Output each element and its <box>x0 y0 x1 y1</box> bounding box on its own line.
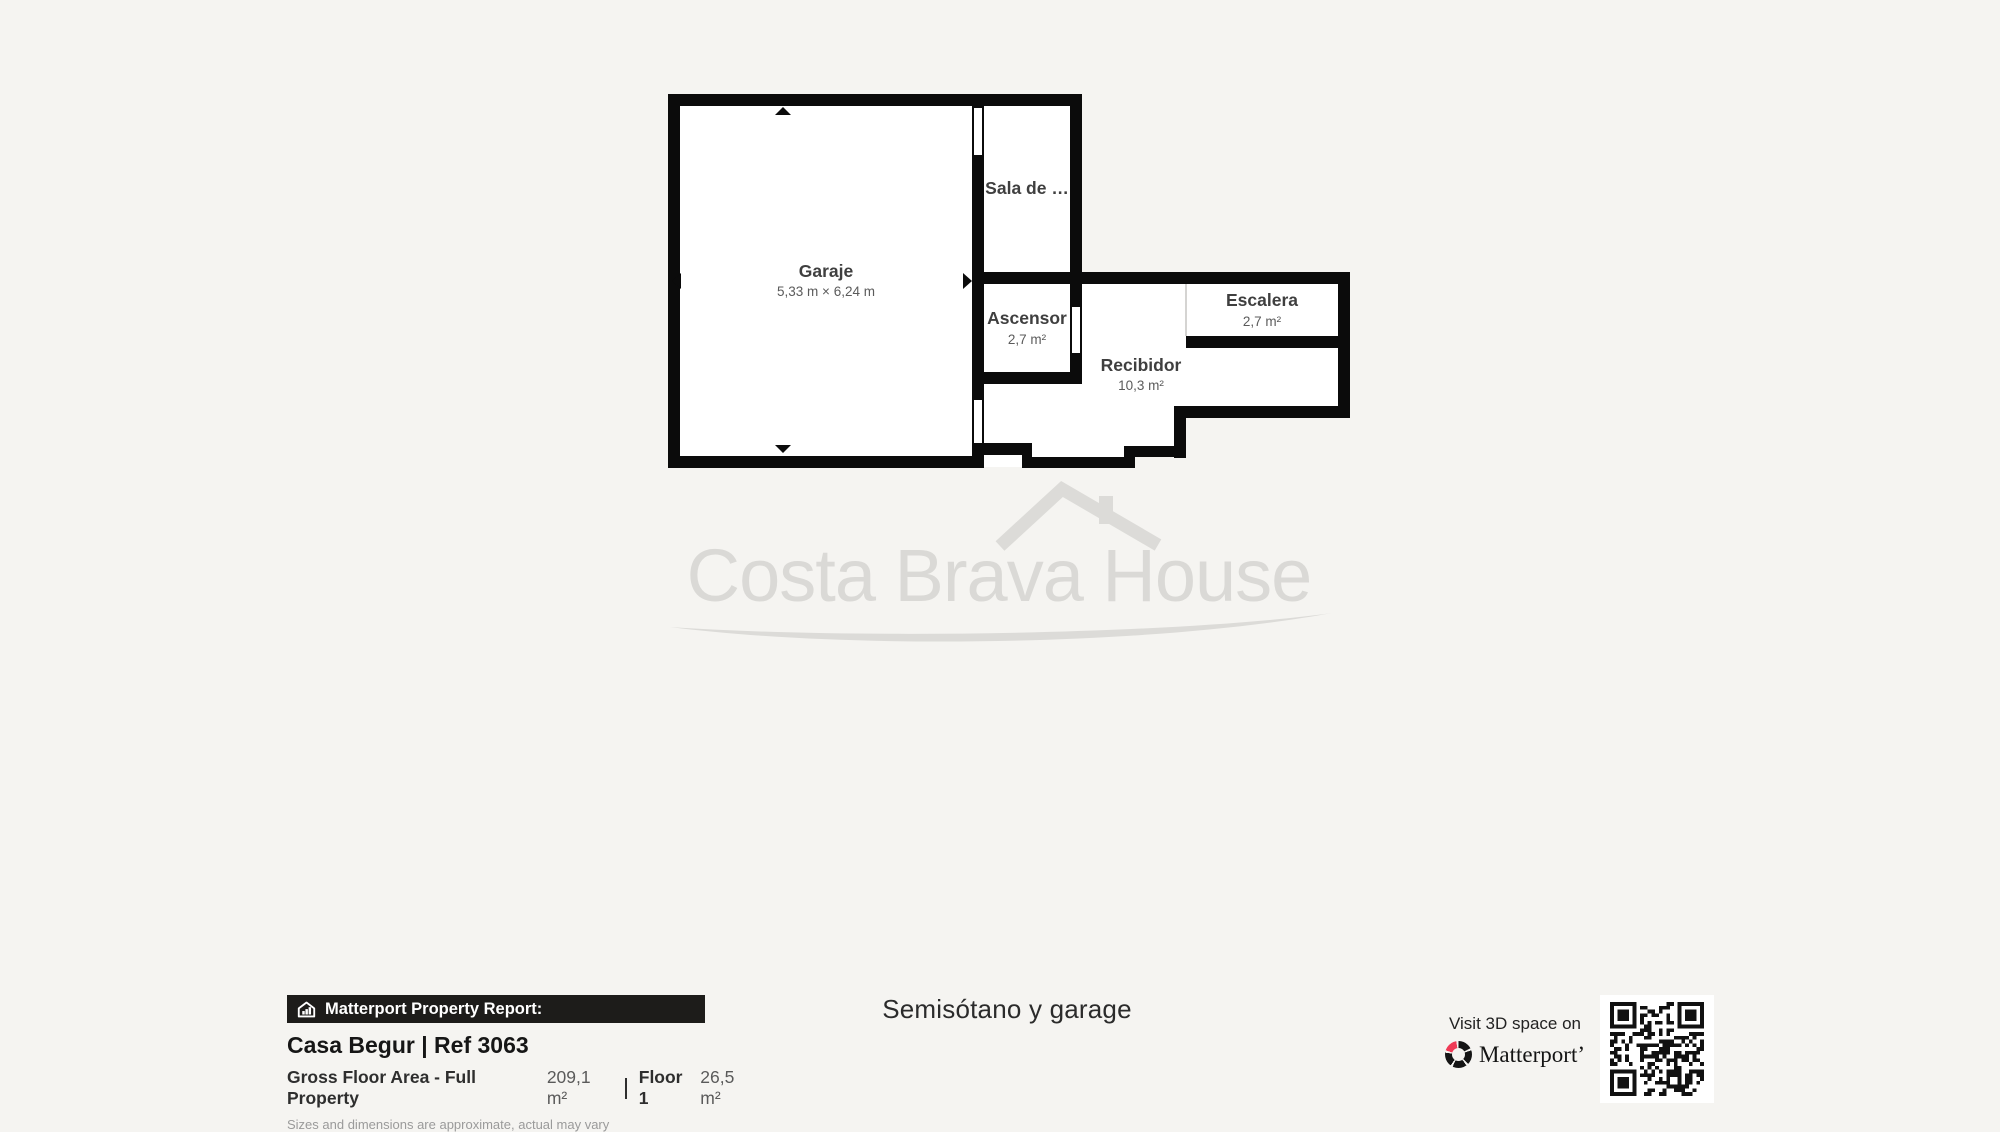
room-dims-recibidor: 10,3 m² <box>1118 378 1164 393</box>
matterport-logo: Matterport’ <box>1430 1041 1600 1068</box>
room-dims-ascensor: 2,7 m² <box>1008 332 1047 347</box>
floor-label: Floor 1 <box>639 1067 695 1109</box>
property-report-page: Garaje 5,33 m × 6,24 m Sala de … Ascenso… <box>0 0 2000 1125</box>
matterport-pinwheel-icon <box>1445 1041 1472 1068</box>
floor-area-value: 26,5 m² <box>700 1067 757 1109</box>
room-label-ascensor: Ascensor <box>987 308 1067 328</box>
gross-area-value: 209,1 m² <box>547 1067 613 1109</box>
watermark: Costa Brava House <box>640 470 1360 660</box>
room-label-escalera: Escalera <box>1226 290 1298 310</box>
room-label-garaje: Garaje <box>799 261 854 281</box>
watermark-swoosh <box>670 613 1332 642</box>
visit-3d-cta[interactable]: Visit 3D space on Matterport’ <box>1430 1014 1600 1068</box>
room-dims-garaje: 5,33 m × 6,24 m <box>777 284 875 299</box>
garage-floor <box>680 106 972 456</box>
room-label-recibidor: Recibidor <box>1101 355 1182 375</box>
gross-area-label: Gross Floor Area - Full Property <box>287 1067 541 1109</box>
property-title: Casa Begur | Ref 3063 <box>287 1032 757 1059</box>
visit-3d-text: Visit 3D space on <box>1430 1014 1600 1034</box>
qr-code[interactable] <box>1600 995 1714 1103</box>
report-info-line: Gross Floor Area - Full Property 209,1 m… <box>287 1067 757 1109</box>
qr-pattern <box>1610 1002 1704 1096</box>
house-chart-icon <box>297 1001 316 1018</box>
floor-title: Semisótano y garage <box>707 994 1307 1025</box>
matterport-wordmark: Matterport’ <box>1479 1042 1585 1068</box>
watermark-text: Costa Brava House <box>687 534 1312 617</box>
report-header-bar: Matterport Property Report: <box>287 995 705 1023</box>
info-divider <box>625 1078 627 1099</box>
floorplan: Garaje 5,33 m × 6,24 m Sala de … Ascenso… <box>660 86 1360 478</box>
report-bar-label: Matterport Property Report: <box>325 1000 542 1019</box>
pinwheel-center <box>1452 1048 1465 1061</box>
room-dims-escalera: 2,7 m² <box>1243 314 1282 329</box>
room-label-sala: Sala de … <box>985 178 1069 198</box>
room-boundary-line <box>1185 284 1187 336</box>
report-block: Matterport Property Report: Casa Begur |… <box>287 995 757 1132</box>
